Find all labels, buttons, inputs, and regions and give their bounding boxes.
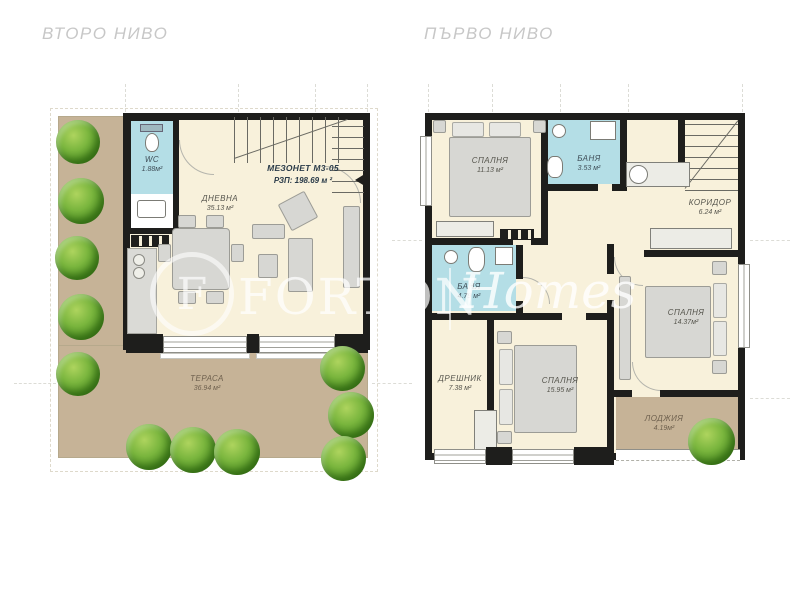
wall-segment <box>487 320 494 410</box>
wall-segment <box>516 245 523 279</box>
bush-icon <box>56 352 100 396</box>
window <box>512 449 574 464</box>
wall-segment <box>678 113 685 163</box>
sink-icon <box>552 124 566 138</box>
washing-machine-icon <box>629 165 648 184</box>
floorplan-canvas: ВТОРО НИВО ПЪРВО НИВО WC 1.88м² МЕЗОНЕТ … <box>0 0 800 608</box>
sink-icon <box>444 250 458 264</box>
bush-icon <box>328 392 374 438</box>
wall-segment <box>586 313 609 320</box>
bush-icon <box>56 120 100 164</box>
axis-line <box>372 383 412 384</box>
wall-segment <box>607 300 614 460</box>
room-label-bedroom-1113: СПАЛНЯ 11.13 м² <box>452 156 528 175</box>
room-label-terrace: ТЕРАСА 36.94 м² <box>165 374 249 393</box>
dining-table <box>172 228 230 290</box>
pillow <box>499 349 513 385</box>
toilet-icon <box>468 247 485 272</box>
wall-segment <box>126 334 163 353</box>
room-label-bath-479: БАНЯ 4.79 м² <box>438 282 500 301</box>
kitchen-sink-icon <box>133 267 145 279</box>
wall-segment <box>541 184 598 191</box>
wall-segment <box>644 250 745 257</box>
nightstand <box>712 261 727 275</box>
wall-segment <box>612 184 627 191</box>
toilet-icon <box>145 133 159 152</box>
window <box>420 136 432 206</box>
axis-line <box>428 84 429 112</box>
axis-line <box>392 240 422 241</box>
unit-label: МЕЗОНЕТ М3-05 РЗП: 198.69 м ² <box>243 162 363 187</box>
axis-line <box>742 84 743 112</box>
wall-segment <box>486 447 512 465</box>
axis-line <box>560 84 561 112</box>
first-level-title: ПЪРВО НИВО <box>424 24 554 44</box>
wall-segment <box>607 244 614 274</box>
window <box>738 264 750 348</box>
wall-segment <box>247 334 259 353</box>
nightstand <box>497 331 512 344</box>
pillow <box>452 122 484 137</box>
wall-segment <box>516 301 523 313</box>
bush-icon <box>58 294 104 340</box>
bush-icon <box>170 427 216 473</box>
wardrobe <box>436 221 494 237</box>
room-label-bath-353: БАНЯ 3.53 м² <box>560 154 618 173</box>
chair <box>158 244 171 262</box>
wardrobe <box>650 228 732 249</box>
room-label-wc: WC 1.88м² <box>125 155 179 174</box>
window <box>434 449 486 464</box>
wall-segment <box>574 447 614 465</box>
chair <box>206 215 224 228</box>
pillow <box>489 122 521 137</box>
coffee-table <box>258 254 278 278</box>
sofa <box>288 238 313 292</box>
room-label-corridor: КОРИДОР 6.24 м² <box>668 198 752 217</box>
tv-cabinet <box>343 206 360 288</box>
sofa <box>252 224 285 239</box>
room-label-bedroom-1437: СПАЛНЯ 14.37м² <box>648 308 724 327</box>
chair <box>178 291 196 304</box>
room-label-living: ДНЕВНА 35.13 м² <box>178 194 262 213</box>
window <box>163 336 247 353</box>
room-label-dressing: ДРЕШНИК 7.38 м² <box>430 374 490 393</box>
axis-line <box>628 84 629 112</box>
axis-line <box>750 240 790 241</box>
chair <box>231 244 244 262</box>
bush-icon <box>55 236 99 280</box>
washing-machine-icon <box>590 121 616 140</box>
chair <box>178 215 196 228</box>
wall-segment <box>660 390 745 397</box>
window-sill <box>160 353 250 359</box>
nightstand <box>533 120 546 133</box>
nightstand <box>433 120 446 133</box>
room-label-loggia: ЛОДЖИЯ 4.19м² <box>628 414 700 433</box>
room-label-bedroom-1595: СПАЛНЯ 15.95 м² <box>528 376 592 395</box>
bush-icon <box>126 424 172 470</box>
cabinet-icon <box>500 229 534 240</box>
wall-segment <box>425 313 562 320</box>
nightstand <box>712 360 727 374</box>
wall-segment <box>614 390 632 397</box>
shower-icon <box>495 247 513 265</box>
bush-icon <box>321 436 366 481</box>
bed <box>449 137 531 217</box>
kitchen-sink-icon <box>133 254 145 266</box>
axis-line <box>750 398 790 399</box>
sink-icon <box>137 200 166 218</box>
toilet-cistern-icon <box>140 124 163 132</box>
bush-icon <box>214 429 260 475</box>
bush-icon <box>58 178 104 224</box>
pillow <box>499 389 513 425</box>
nightstand <box>497 431 512 444</box>
radiator <box>619 276 631 380</box>
bush-icon <box>320 346 365 391</box>
chair <box>206 291 224 304</box>
axis-line <box>492 84 493 112</box>
second-level-title: ВТОРО НИВО <box>42 24 168 44</box>
window <box>259 336 335 353</box>
